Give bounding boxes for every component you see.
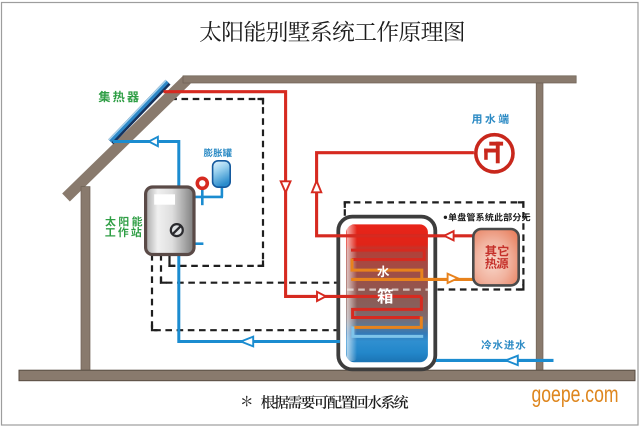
svg-text:goepe.com: goepe.com bbox=[532, 381, 619, 407]
